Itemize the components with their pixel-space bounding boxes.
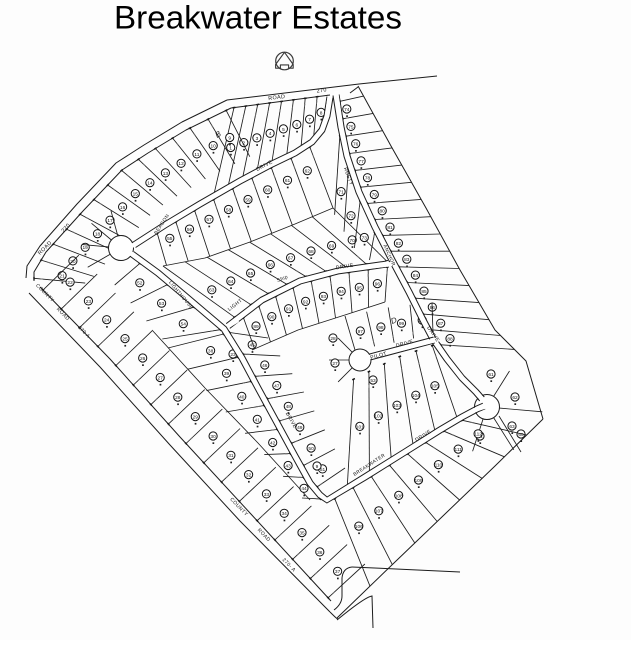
svg-text:62: 62 — [512, 395, 518, 401]
svg-text:3: 3 — [256, 136, 259, 142]
svg-text:98: 98 — [378, 325, 384, 331]
svg-text:47: 47 — [274, 383, 280, 389]
svg-text:35: 35 — [299, 531, 305, 537]
svg-text:32: 32 — [246, 473, 252, 479]
svg-text:19: 19 — [83, 245, 89, 251]
svg-text:25: 25 — [122, 337, 128, 343]
svg-text:1: 1 — [229, 145, 232, 151]
svg-text:52: 52 — [137, 281, 143, 287]
svg-text:10: 10 — [211, 144, 217, 150]
svg-text:102: 102 — [374, 414, 382, 420]
svg-text:85: 85 — [421, 289, 427, 295]
svg-text:111: 111 — [455, 447, 463, 453]
svg-text:81: 81 — [387, 225, 393, 231]
svg-text:76: 76 — [353, 142, 359, 148]
svg-text:61: 61 — [488, 372, 494, 378]
svg-text:28: 28 — [330, 336, 336, 342]
svg-text:67: 67 — [288, 256, 294, 262]
svg-text:57: 57 — [206, 217, 212, 223]
svg-text:112: 112 — [474, 432, 482, 438]
svg-text:54: 54 — [181, 322, 187, 328]
svg-text:60: 60 — [265, 188, 271, 194]
svg-text:28: 28 — [175, 395, 181, 401]
svg-text:55: 55 — [167, 236, 173, 242]
svg-text:103: 103 — [393, 403, 401, 409]
svg-text:97: 97 — [358, 329, 364, 335]
svg-text:72: 72 — [348, 214, 354, 220]
svg-text:56: 56 — [187, 227, 193, 233]
svg-text:75: 75 — [348, 124, 354, 130]
svg-text:61: 61 — [285, 178, 291, 184]
svg-text:99: 99 — [399, 321, 405, 327]
svg-text:63: 63 — [509, 424, 515, 430]
svg-text:50: 50 — [308, 446, 314, 452]
svg-text:33: 33 — [264, 492, 270, 498]
svg-text:106: 106 — [355, 524, 363, 530]
svg-text:12: 12 — [178, 161, 184, 167]
svg-text:79: 79 — [372, 192, 378, 198]
svg-text:13: 13 — [163, 171, 169, 177]
svg-text:53: 53 — [370, 378, 376, 384]
svg-text:36: 36 — [317, 550, 323, 556]
svg-text:29: 29 — [193, 415, 199, 421]
svg-text:92: 92 — [303, 299, 309, 305]
svg-text:69: 69 — [329, 243, 335, 249]
svg-text:27: 27 — [332, 361, 338, 367]
svg-text:88: 88 — [447, 337, 453, 343]
svg-text:53: 53 — [159, 301, 165, 307]
svg-text:59: 59 — [245, 197, 251, 203]
svg-text:63: 63 — [209, 288, 215, 294]
svg-text:6: 6 — [295, 122, 298, 128]
svg-text:62: 62 — [305, 169, 311, 175]
svg-text:18: 18 — [95, 232, 101, 238]
svg-text:84: 84 — [413, 273, 419, 279]
svg-text:58: 58 — [226, 207, 232, 213]
svg-text:16: 16 — [120, 205, 126, 211]
svg-text:5: 5 — [282, 127, 285, 133]
svg-text:95: 95 — [357, 285, 363, 291]
svg-text:94: 94 — [339, 289, 345, 295]
svg-text:65: 65 — [518, 432, 524, 438]
svg-text:30: 30 — [210, 434, 216, 440]
svg-text:96: 96 — [375, 282, 381, 288]
svg-text:104: 104 — [412, 393, 420, 399]
svg-text:71: 71 — [338, 190, 344, 196]
svg-text:15: 15 — [133, 192, 139, 198]
svg-text:89: 89 — [253, 324, 259, 330]
svg-text:90: 90 — [269, 315, 275, 321]
svg-text:109: 109 — [414, 478, 422, 484]
svg-text:65: 65 — [248, 271, 254, 277]
svg-text:11: 11 — [194, 152, 199, 158]
svg-text:66: 66 — [268, 262, 274, 268]
svg-text:43: 43 — [285, 463, 291, 469]
svg-text:77: 77 — [358, 159, 364, 165]
svg-text:44: 44 — [301, 486, 307, 492]
svg-text:20: 20 — [70, 259, 76, 265]
svg-text:38: 38 — [208, 349, 214, 355]
svg-text:40: 40 — [239, 394, 245, 400]
svg-text:37: 37 — [335, 569, 341, 575]
svg-text:101: 101 — [356, 424, 364, 430]
svg-text:78: 78 — [365, 176, 371, 182]
svg-text:9: 9 — [228, 135, 231, 141]
svg-text:48: 48 — [286, 404, 292, 410]
svg-text:24: 24 — [104, 318, 110, 324]
svg-text:108: 108 — [395, 493, 403, 499]
svg-text:Breakwater Estates: Breakwater Estates — [114, 0, 402, 36]
svg-text:107: 107 — [375, 509, 383, 515]
svg-text:68: 68 — [308, 249, 314, 255]
svg-text:31: 31 — [228, 453, 234, 459]
svg-text:21: 21 — [59, 274, 65, 280]
svg-text:23: 23 — [86, 299, 92, 305]
svg-text:80: 80 — [380, 209, 386, 215]
svg-text:74: 74 — [344, 107, 350, 113]
svg-text:46: 46 — [262, 363, 268, 369]
svg-text:64: 64 — [228, 279, 234, 285]
svg-text:4: 4 — [269, 131, 272, 137]
svg-text:17: 17 — [107, 218, 113, 224]
svg-text:87: 87 — [438, 321, 444, 327]
svg-text:9: 9 — [316, 464, 319, 470]
svg-text:70: 70 — [350, 238, 356, 244]
svg-text:73: 73 — [362, 235, 368, 241]
svg-text:14: 14 — [147, 181, 153, 187]
svg-text:34: 34 — [282, 511, 288, 517]
svg-text:27: 27 — [158, 375, 164, 381]
svg-text:7: 7 — [308, 117, 311, 123]
svg-text:39: 39 — [224, 371, 230, 377]
svg-text:91: 91 — [286, 307, 292, 313]
svg-text:93: 93 — [321, 294, 327, 300]
svg-text:41: 41 — [255, 417, 261, 423]
svg-text:83: 83 — [404, 257, 410, 263]
svg-text:22: 22 — [67, 280, 73, 286]
svg-text:26: 26 — [140, 356, 146, 362]
svg-text:42: 42 — [270, 440, 276, 446]
svg-text:105: 105 — [431, 384, 439, 390]
svg-text:8: 8 — [320, 110, 323, 116]
svg-text:110: 110 — [435, 463, 443, 469]
svg-text:82: 82 — [396, 241, 402, 247]
